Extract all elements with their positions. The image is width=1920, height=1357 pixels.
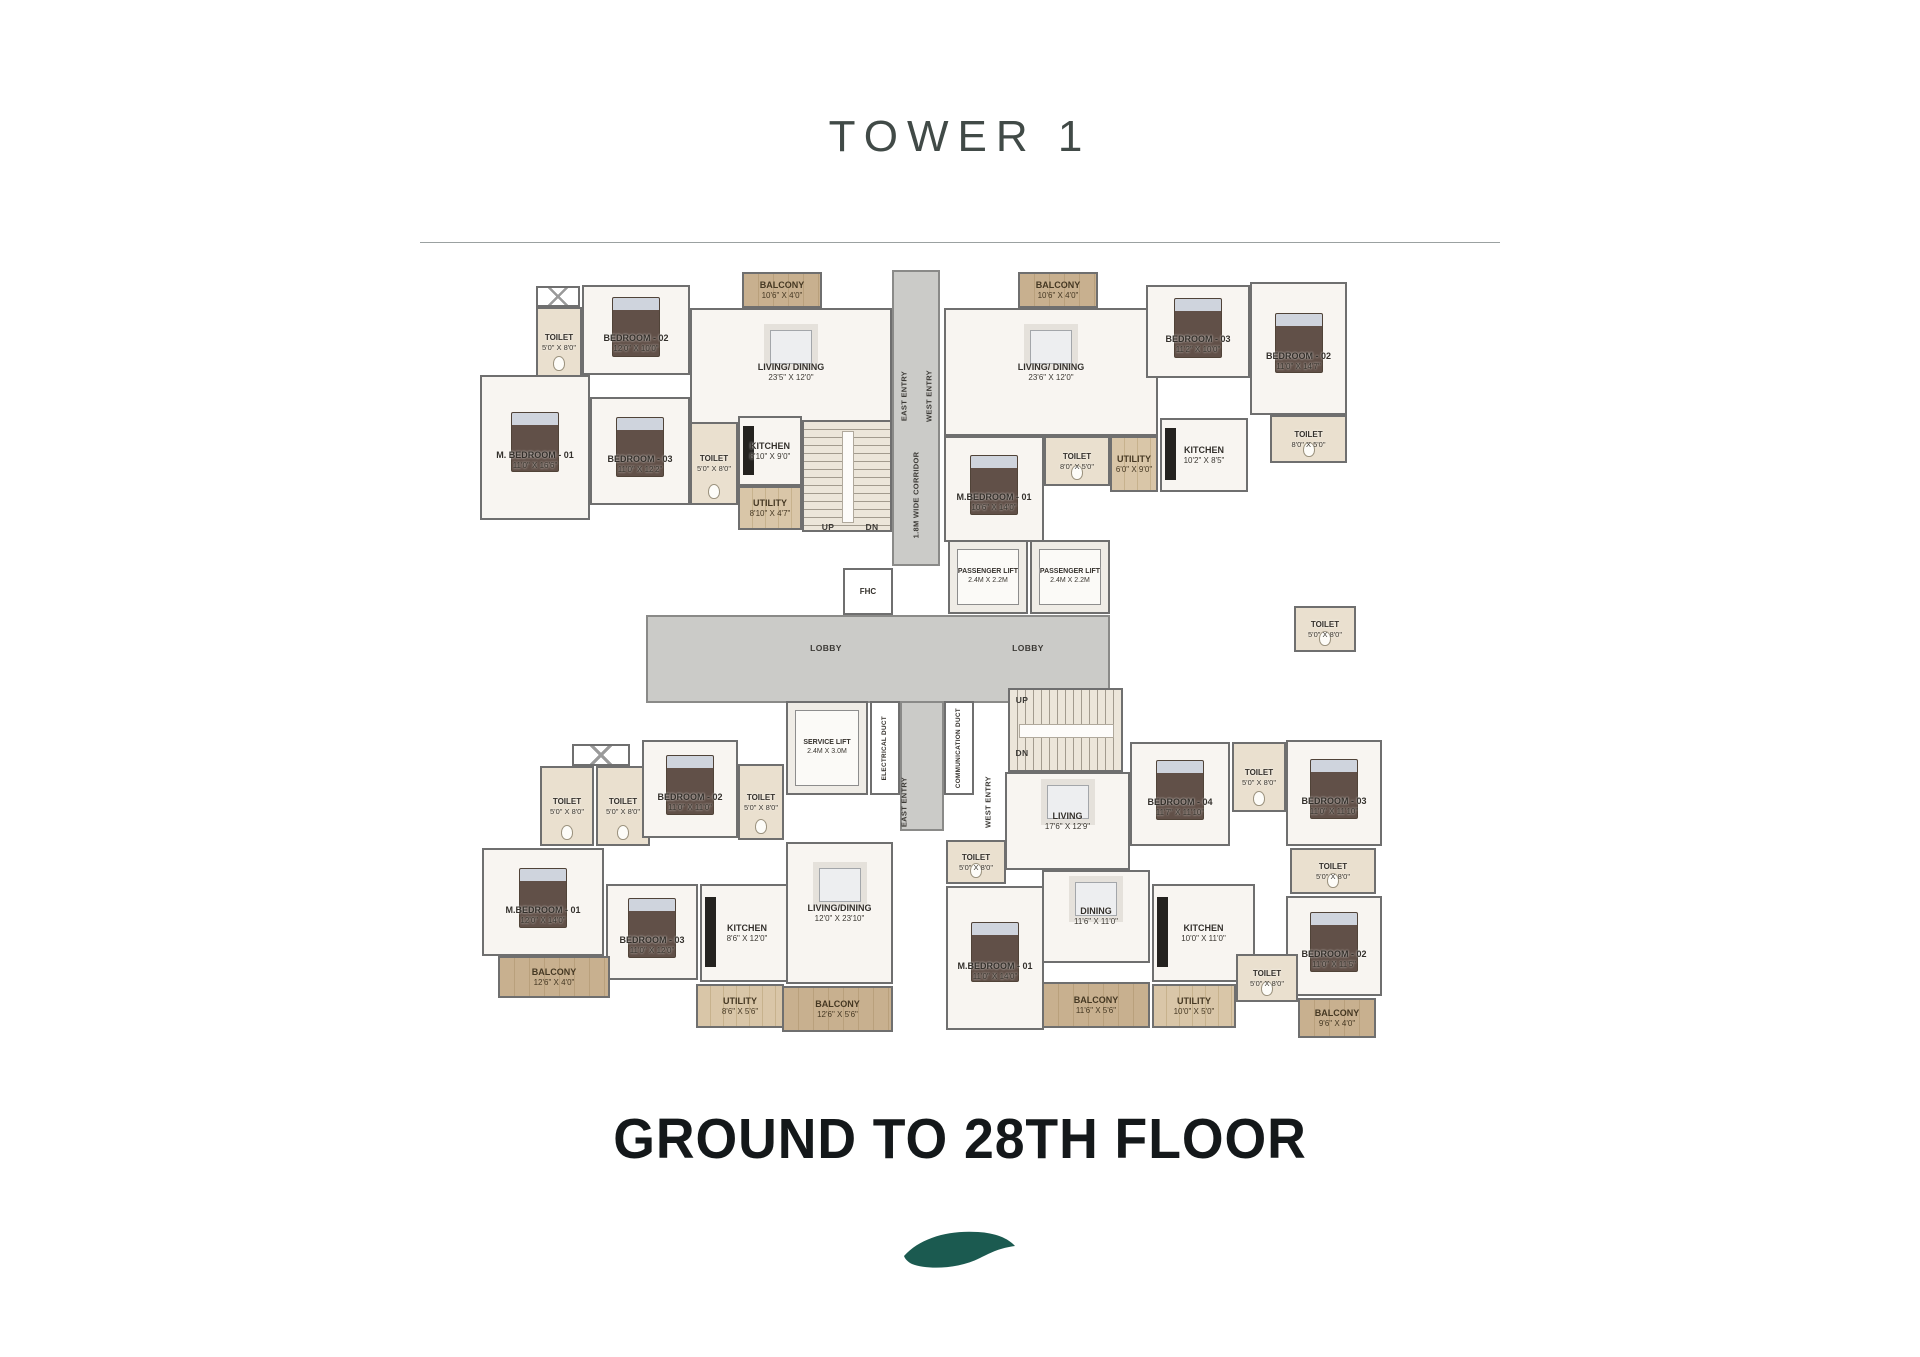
room-br-m-bedroom-1: M.BEDROOM - 0111'0" X 14'0" [946, 886, 1044, 1030]
label-dn: DN [1015, 748, 1028, 758]
room-tl-balcony: BALCONY10'6" X 4'0" [742, 272, 822, 308]
room-br-balcony-2: BALCONY9'6" X 4'0" [1298, 998, 1376, 1038]
room-fhc: FHC [843, 568, 893, 615]
room-bl-toilet-1: TOILET5'0" X 8'0" [540, 766, 594, 846]
room-passenger-lift-2: PASSENGER LIFT2.4M X 2.2M [1030, 540, 1110, 614]
page: TOWER 1 TOILET5'0" X 8'0"BEDROOM - 0212'… [0, 0, 1920, 1357]
room-br-utility: UTILITY10'0" X 5'0" [1152, 984, 1236, 1028]
room-bl-kitchen: KITCHEN8'6" X 12'0" [700, 884, 794, 982]
room-bl-utility: UTILITY8'6" X 5'6" [696, 984, 784, 1028]
room-br-living: LIVING17'6" X 12'9" [1005, 772, 1130, 870]
room-bl-shaft [572, 744, 630, 766]
room-bl-m-bedroom-1: M.BEDROOM - 0112'0" X 14'0" [482, 848, 604, 956]
room-tl-kitchen: KITCHEN8'10" X 9'0" [738, 416, 802, 486]
vertical-label-east-entry: EAST ENTRY [900, 777, 909, 827]
label-up: UP [1016, 695, 1029, 705]
room-tr-bedroom-3: BEDROOM - 0311'2" X 10'0" [1146, 285, 1250, 378]
vertical-label-east-entry: EAST ENTRY [900, 371, 909, 421]
room-tl-bedroom-3: BEDROOM - 0311'0" X 12'2" [590, 397, 690, 505]
vertical-label-west-entry: WEST ENTRY [925, 370, 934, 422]
room-electrical-duct: ELECTRICAL DUCT [870, 701, 900, 795]
room-tr-toilet-1: TOILET8'0" X 5'0" [1270, 415, 1347, 463]
room-br-toilet-b: TOILET5'0" X 8'0" [1290, 848, 1376, 894]
label-up: UP [822, 522, 835, 532]
label-lobby: LOBBY [810, 643, 842, 653]
vertical-label-west-entry: WEST ENTRY [984, 776, 993, 828]
room-tr-balcony: BALCONY10'6" X 4'0" [1018, 272, 1098, 308]
label-lobby: LOBBY [1012, 643, 1044, 653]
room-tl-bedroom-2: BEDROOM - 0212'0" X 10'0" [582, 285, 690, 375]
room-tr-bedroom-2: BEDROOM - 0211'0" X 14'7" [1250, 282, 1347, 415]
room-bl-balcony-1: BALCONY12'6" X 4'0" [498, 956, 610, 998]
room-bl-living-dining: LIVING/DINING12'0" X 23'10" [786, 842, 893, 984]
room-br-toilet-d: TOILET5'0" X 8'0" [946, 840, 1006, 884]
room-tr-m-bedroom-1: M.BEDROOM - 0110'6" X 14'0" [944, 436, 1044, 542]
room-br-balcony-1: BALCONY11'6" X 5'6" [1042, 982, 1150, 1028]
room-tr-kitchen: KITCHEN10'2" X 8'5" [1160, 418, 1248, 492]
room-service-lift: SERVICE LIFT2.4M X 3.0M [786, 701, 868, 795]
room-br-bedroom-2: BEDROOM - 0211'0" X 11'5" [1286, 896, 1382, 996]
room-tl-shaft [536, 286, 580, 307]
room-tr-toilet-2: TOILET8'0" X 5'0" [1044, 436, 1110, 486]
room-bl-toilet-3: TOILET5'0" X 8'0" [738, 764, 784, 840]
label-dn: DN [865, 522, 878, 532]
room-stairs-1 [802, 420, 892, 532]
vertical-label-1-8m-wide-corridor: 1.8M WIDE CORRIDOR [912, 452, 921, 539]
room-tl-toilet-1: TOILET5'0" X 8'0" [536, 307, 582, 377]
room-tl-m-bedroom-1: M. BEDROOM - 0111'0" X 16'6" [480, 375, 590, 520]
room-br-dining: DINING11'6" X 11'0" [1042, 870, 1150, 963]
room-br-toilet-a: TOILET5'0" X 8'0" [1232, 742, 1286, 812]
room-br-bedroom-4: BEDROOM - 0411'7" X 11'10" [1130, 742, 1230, 846]
room-bl-bedroom-2: BEDROOM - 0211'0" X 11'0" [642, 740, 738, 838]
room-br-toilet-top: TOILET5'0" X 8'0" [1294, 606, 1356, 652]
room-tl-toilet-2: TOILET5'0" X 8'0" [690, 422, 738, 505]
room-bl-bedroom-3: BEDROOM - 0311'0" X 12'0" [606, 884, 698, 980]
room-communication-duct: COMMUNICATION DUCT [944, 701, 974, 795]
room-tr-utility: UTILITY6'0" X 9'0" [1110, 436, 1158, 492]
floor-range-heading: GROUND TO 28TH FLOOR [58, 1106, 1863, 1172]
room-tl-utility: UTILITY8'10" X 4'7" [738, 486, 802, 530]
leaf-icon [900, 1226, 1020, 1278]
room-bl-balcony-2: BALCONY12'6" X 5'6" [782, 986, 893, 1032]
room-passenger-lift-1: PASSENGER LIFT2.4M X 2.2M [948, 540, 1028, 614]
room-br-toilet-c: TOILET5'0" X 8'0" [1236, 954, 1298, 1002]
room-br-bedroom-3: BEDROOM - 0311'0" X 11'10" [1286, 740, 1382, 846]
room-tr-living-dining: LIVING/ DINING23'6" X 12'0" [944, 308, 1158, 436]
